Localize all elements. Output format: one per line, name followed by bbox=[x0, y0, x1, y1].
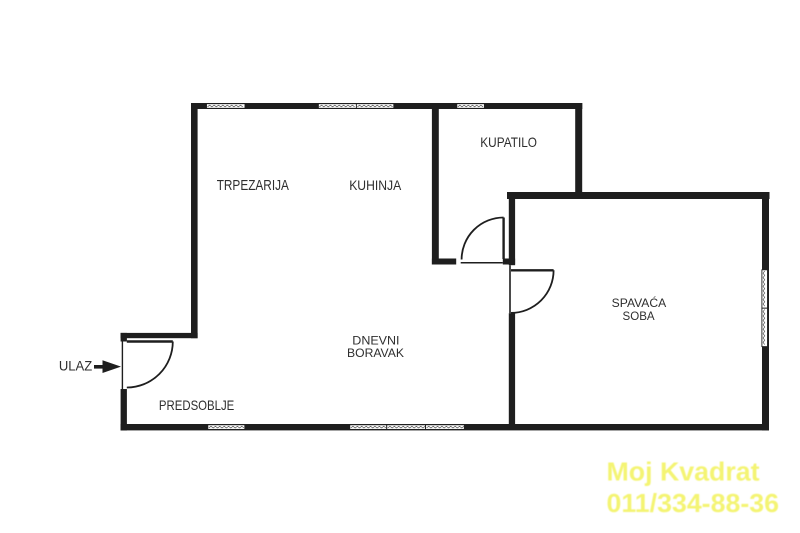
svg-text:DNEVNI: DNEVNI bbox=[352, 335, 399, 348]
svg-text:ULAZ: ULAZ bbox=[59, 358, 93, 374]
svg-text:PREDSOBLJE: PREDSOBLJE bbox=[159, 398, 234, 413]
svg-text:011/334-88-36: 011/334-88-36 bbox=[607, 488, 780, 518]
svg-text:SOBA: SOBA bbox=[623, 310, 655, 323]
svg-text:Moj Kvadrat: Moj Kvadrat bbox=[607, 459, 761, 487]
svg-text:TRPEZARIJA: TRPEZARIJA bbox=[217, 178, 289, 194]
svg-text:BORAVAK: BORAVAK bbox=[347, 347, 404, 360]
svg-text:SPAVAĆA: SPAVAĆA bbox=[612, 297, 667, 310]
svg-text:KUPATILO: KUPATILO bbox=[480, 135, 537, 150]
svg-text:KUHINJA: KUHINJA bbox=[349, 178, 402, 193]
